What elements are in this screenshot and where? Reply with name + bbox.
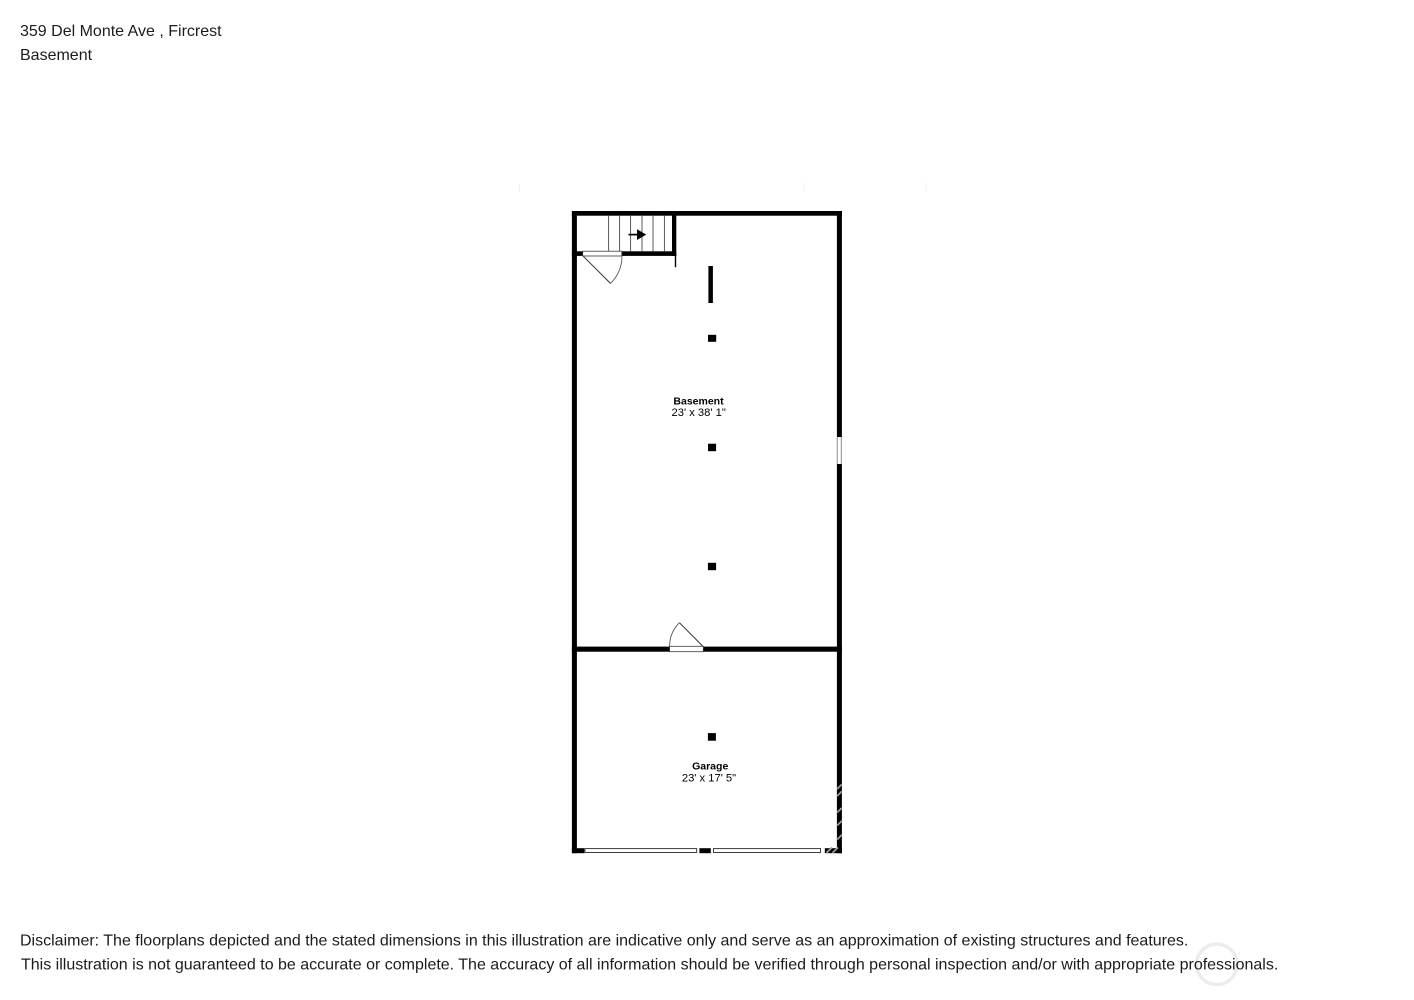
- svg-text:Basement: Basement: [20, 47, 93, 64]
- svg-text:23' x 17' 5": 23' x 17' 5": [682, 773, 736, 785]
- svg-text:Garage: Garage: [692, 761, 728, 773]
- svg-text:23' x 38' 1": 23' x 38' 1": [672, 407, 726, 419]
- svg-text:Disclaimer: The floorplans dep: Disclaimer: The floorplans depicted and …: [20, 933, 1188, 950]
- svg-text:This illustration is not guara: This illustration is not guaranteed to b…: [21, 957, 1278, 974]
- svg-text:Basement: Basement: [673, 395, 724, 407]
- svg-text:359 Del Monte Ave , Fircrest: 359 Del Monte Ave , Fircrest: [20, 23, 222, 40]
